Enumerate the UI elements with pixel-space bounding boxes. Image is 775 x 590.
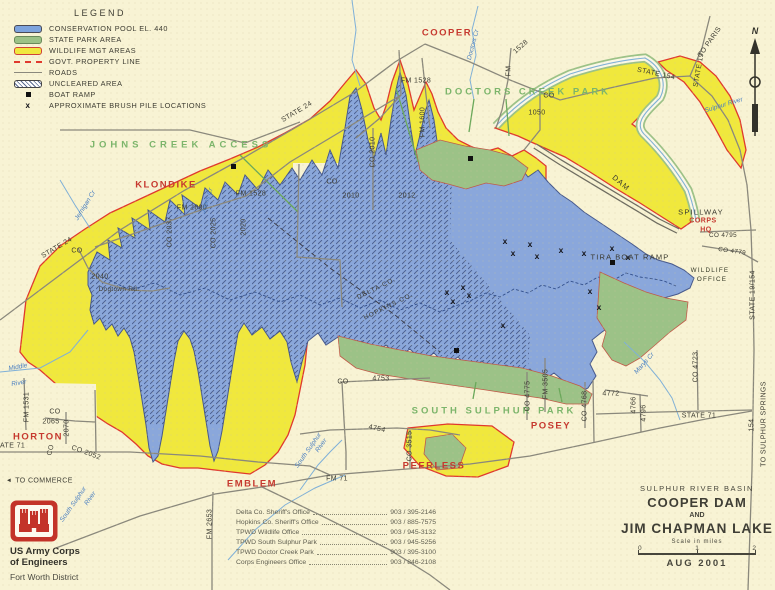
road-label-fm3505: FM 3505 (543, 369, 550, 399)
phone-number: 903 / 945-3132 (390, 529, 436, 536)
wildlife-office-label-1: WILDLIFE (691, 268, 730, 274)
dot-leader (322, 524, 388, 525)
brush-pile-marker: x (588, 287, 593, 296)
road-label-154: 154 (749, 419, 756, 432)
phone-number: 903 / 395-2146 (390, 509, 436, 516)
phone-number: 903 / 945-5256 (390, 539, 436, 546)
spillway-label: SPILLWAY (678, 208, 724, 216)
legend-item-label: GOVT. PROPERTY LINE (49, 57, 141, 66)
corps-castle-logo-icon (10, 500, 58, 542)
road-label-co4723: CO 4723 (693, 352, 700, 383)
phone-name: Delta Co. Sheriff's Office (236, 509, 310, 516)
boat-ramp-marker (454, 348, 459, 353)
park-label-johns-creek: JOHNS CREEK ACCESS (90, 140, 273, 150)
road-label-co-d: CO (49, 409, 60, 416)
park-label-doctors-creek: DOCTORS CREEK PARK (445, 87, 611, 97)
brush-pile-marker: x (528, 240, 533, 249)
brush-pile-marker: x (559, 246, 564, 255)
brush-pile-marker: x (610, 244, 615, 253)
corps-hq-label-1: CORPS (689, 218, 716, 225)
west-arrow-icon: ◄ (6, 478, 12, 484)
legend-item-label: CONSERVATION POOL EL. 440 (49, 24, 168, 33)
road-label-to-commerce: TO COMMERCE (15, 478, 73, 485)
dot-leader (302, 534, 387, 535)
town-emblem: EMBLEM (227, 479, 277, 489)
phone-name: Hopkins Co. Sheriff's Office (236, 519, 319, 526)
north-arrow-icon (744, 36, 766, 140)
legend-item-uncleared: UNCLEARED AREA (14, 78, 206, 89)
town-posey: POSEY (531, 421, 571, 431)
boat-ramp-swatch-icon (14, 91, 42, 99)
legend-item-wildlife: WILDLIFE MGT AREAS (14, 45, 206, 56)
road-label-state19-154: STATE 19/154 (750, 270, 757, 320)
road-label-2020: 2020 (241, 218, 248, 235)
road-label-2065: 2065 (42, 419, 59, 426)
dot-leader (317, 554, 387, 555)
brush-pile-marker: x (461, 283, 466, 292)
phone-row: Delta Co. Sheriff's Office 903 / 395-214… (236, 506, 436, 516)
brush-pile-marker: x (445, 288, 450, 297)
phone-row: Hopkins Co. Sheriff's Office 903 / 885-7… (236, 516, 436, 526)
road-label-state71-a: STATE 71 (682, 413, 716, 420)
road-label-4753: 4753 (372, 376, 389, 383)
legend-item-label: WILDLIFE MGT AREAS (49, 46, 136, 55)
road-label-co4795: CO 4795 (709, 233, 737, 239)
road-label-state71-b: STATE 71 (0, 443, 25, 450)
phone-row: TPWD Doctor Creek Park 903 / 395-3100 (236, 546, 436, 556)
map-page: LEGEND CONSERVATION POOL EL. 440 STATE P… (0, 0, 775, 590)
agency-district: Fort Worth District (10, 572, 80, 582)
boat-ramp-marker (231, 164, 236, 169)
road-label-4796: 4796 (641, 404, 648, 421)
road-label-2010: 2010 (342, 193, 359, 200)
phone-name: TPWD Wildlife Office (236, 529, 299, 536)
land-pocket-horton (0, 382, 98, 470)
legend-item-roads: ROADS (14, 67, 206, 78)
park-label-south-sulphur: SOUTH SULPHUR PARK (412, 406, 577, 416)
road-swatch-icon (14, 72, 42, 73)
legend-item-label: APPROXIMATE BRUSH PILE LOCATIONS (49, 101, 206, 110)
park-swatch-icon (14, 36, 42, 44)
brush-pile-marker: x (597, 303, 602, 312)
road-label-fm1531: FM 1531 (24, 392, 31, 422)
road-label-4766: 4766 (631, 396, 638, 413)
dot-leader (320, 544, 387, 545)
phone-directory: Delta Co. Sheriff's Office 903 / 395-214… (236, 506, 436, 566)
map-title-and: AND (613, 512, 775, 519)
town-horton: HORTON (13, 432, 63, 442)
road-label-2012: 2012 (398, 193, 415, 200)
road-label-to-sulphur-springs: TO SULPHUR SPRINGS (761, 381, 768, 467)
phone-row: TPWD Wildlife Office 903 / 945-3132 (236, 526, 436, 536)
road-label-dogtown: Dogtown Rd. (99, 287, 140, 293)
legend-item-label: ROADS (49, 68, 77, 77)
legend-item-property-line: GOVT. PROPERTY LINE (14, 56, 206, 67)
brush-pile-marker: x (535, 252, 540, 261)
agency-block: US Army Corps of Engineers Fort Worth Di… (10, 500, 80, 582)
brush-pile-marker: x (501, 321, 506, 330)
phone-number: 903 / 885-7575 (390, 519, 436, 526)
brush-pile-swatch-icon: x (14, 102, 42, 110)
phone-row: TPWD South Sulphur Park 903 / 945-5256 (236, 536, 436, 546)
brush-pile-marker: x (451, 297, 456, 306)
road-label-fm2653: FM 2653 (207, 509, 214, 539)
pool-swatch-icon (14, 25, 42, 33)
map-title-block: SULPHUR RIVER BASIN COOPER DAM AND JIM C… (613, 484, 775, 569)
uncleared-swatch-icon (14, 80, 42, 88)
phone-name: TPWD South Sulphur Park (236, 539, 317, 546)
legend-title: LEGEND (74, 8, 206, 18)
road-label-co-b: CO (543, 93, 554, 100)
road-label-co-f: CO (337, 379, 348, 386)
town-klondike: KLONDIKE (135, 180, 197, 190)
road-label-fm1528-b: FM 1528 (236, 191, 266, 198)
town-peerless: PEERLESS (403, 461, 466, 471)
phone-number: 903 / 846-2108 (390, 559, 436, 566)
legend-item-pool: CONSERVATION POOL EL. 440 (14, 23, 206, 34)
tira-boat-ramp-label: TIRA BOAT RAMP (590, 253, 669, 261)
dot-leader (309, 564, 387, 565)
legend-item-label: BOAT RAMP (49, 90, 96, 99)
legend-item-brush-pile: x APPROXIMATE BRUSH PILE LOCATIONS (14, 100, 206, 111)
legend-item-label: UNCLEARED AREA (49, 79, 123, 88)
phone-name: Corps Engineers Office (236, 559, 306, 566)
legend-item-boat-ramp: BOAT RAMP (14, 89, 206, 100)
brush-pile-marker: x (467, 291, 472, 300)
road-label-fm1600: FM 1600 (420, 107, 427, 137)
road-label-co3515: CO 3515 (407, 431, 414, 462)
boat-ramp-marker (468, 156, 473, 161)
basin-label: SULPHUR RIVER BASIN (613, 484, 775, 493)
north-label: N (744, 26, 766, 36)
road-label-co2025: CO 2025 (211, 218, 218, 249)
road-label-2070: 2070 (64, 419, 71, 436)
agency-name-line2: of Engineers (10, 558, 80, 569)
road-label-co4775: CO 4775 (525, 381, 532, 412)
north-arrow: N (744, 26, 766, 145)
road-label-co2037: CO 2037 (167, 217, 174, 248)
map-title-line2: JIM CHAPMAN LAKE (613, 521, 775, 536)
road-label-fm-vert: FM (506, 66, 513, 77)
dot-leader (313, 514, 387, 515)
legend: LEGEND CONSERVATION POOL EL. 440 STATE P… (14, 8, 206, 111)
road-label-co-c: CO (71, 248, 82, 255)
property-line-swatch-icon (14, 61, 42, 63)
scale-bar (638, 553, 756, 555)
road-label-fm71: FM 71 (326, 476, 348, 483)
wildlife-office-label-2: OFFICE (697, 277, 727, 283)
phone-name: TPWD Doctor Creek Park (236, 549, 314, 556)
map-date: AUG 2001 (613, 558, 775, 569)
town-cooper: COOPER (422, 28, 472, 38)
road-label-2040: 2040 (91, 274, 108, 281)
brush-pile-marker: x (503, 237, 508, 246)
wildlife-swatch-icon (14, 47, 42, 55)
road-label-co2010-vert: CO 2010 (370, 137, 377, 168)
road-label-fm1528-a: FM 1528 (401, 78, 431, 85)
road-label-1050: 1050 (528, 110, 545, 117)
legend-item-park: STATE PARK AREA (14, 34, 206, 45)
road-label-co4768: CO 4768 (582, 391, 589, 422)
phone-number: 903 / 395-3100 (390, 549, 436, 556)
brush-pile-marker: x (582, 249, 587, 258)
brush-pile-marker: x (511, 249, 516, 258)
road-label-co: CO (326, 179, 337, 186)
map-title-line1: COOPER DAM (613, 495, 775, 510)
road-label-4772: 4772 (602, 391, 619, 398)
legend-item-label: STATE PARK AREA (49, 35, 122, 44)
phone-row: Corps Engineers Office 903 / 846-2108 (236, 556, 436, 566)
